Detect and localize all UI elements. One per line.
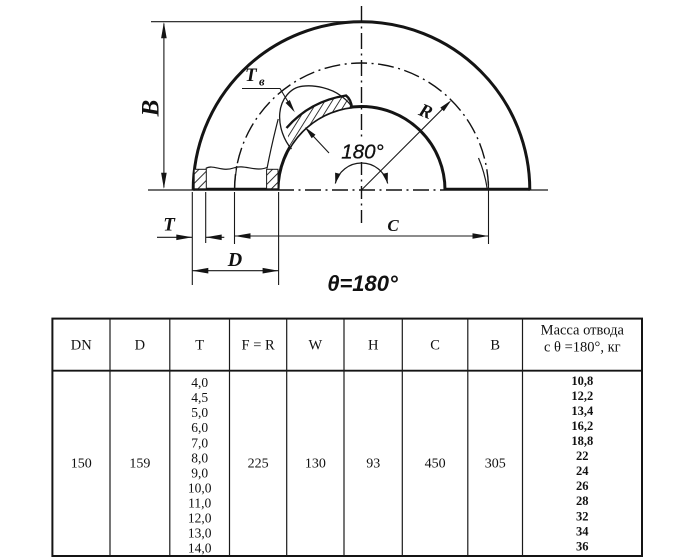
- svg-text:18,8: 18,8: [571, 434, 593, 448]
- svg-text:T: T: [245, 65, 258, 86]
- svg-text:180°: 180°: [341, 141, 383, 164]
- svg-text:4,0: 4,0: [191, 375, 208, 390]
- svg-text:10,0: 10,0: [188, 480, 212, 495]
- svg-text:34: 34: [576, 524, 589, 538]
- svg-text:7,0: 7,0: [191, 435, 208, 450]
- svg-text:16,2: 16,2: [571, 419, 593, 433]
- svg-text:4,5: 4,5: [191, 390, 208, 405]
- svg-text:6,0: 6,0: [191, 420, 208, 435]
- svg-text:36: 36: [576, 539, 589, 553]
- svg-text:T: T: [195, 338, 204, 354]
- svg-text:13,0: 13,0: [188, 526, 212, 541]
- svg-text:93: 93: [366, 457, 380, 472]
- svg-text:5,0: 5,0: [191, 405, 208, 420]
- svg-text:225: 225: [248, 457, 269, 472]
- svg-text:28: 28: [576, 494, 589, 508]
- svg-text:8,0: 8,0: [191, 450, 208, 465]
- svg-text:11,0: 11,0: [188, 496, 211, 511]
- svg-text:θ=180°: θ=180°: [327, 271, 398, 296]
- svg-text:159: 159: [129, 457, 150, 472]
- svg-text:DN: DN: [71, 338, 92, 354]
- svg-text:B: B: [490, 338, 500, 354]
- svg-text:32: 32: [576, 509, 589, 523]
- svg-text:Масса отвода: Масса отвода: [541, 323, 625, 339]
- svg-text:26: 26: [576, 479, 589, 493]
- svg-text:F = R: F = R: [242, 338, 275, 354]
- svg-text:9,0: 9,0: [191, 465, 208, 480]
- svg-text:D: D: [227, 249, 242, 271]
- svg-text:C: C: [430, 338, 440, 354]
- svg-text:T: T: [163, 215, 176, 236]
- svg-text:150: 150: [71, 457, 92, 472]
- svg-text:W: W: [309, 338, 323, 354]
- svg-text:14,0: 14,0: [188, 541, 212, 556]
- svg-text:305: 305: [485, 457, 506, 472]
- svg-text:10,8: 10,8: [571, 374, 593, 388]
- svg-text:H: H: [368, 338, 379, 354]
- svg-text:12,2: 12,2: [571, 389, 593, 403]
- svg-text:с θ =180°, кг: с θ =180°, кг: [544, 340, 621, 356]
- svg-text:13,4: 13,4: [571, 404, 594, 418]
- svg-text:450: 450: [425, 457, 446, 472]
- svg-text:в: в: [259, 75, 265, 89]
- svg-text:130: 130: [305, 457, 326, 472]
- svg-text:B: B: [138, 100, 165, 118]
- svg-text:22: 22: [576, 449, 589, 463]
- svg-text:12,0: 12,0: [188, 511, 212, 526]
- svg-text:24: 24: [576, 464, 589, 478]
- svg-text:C: C: [387, 216, 399, 235]
- svg-text:D: D: [135, 338, 145, 354]
